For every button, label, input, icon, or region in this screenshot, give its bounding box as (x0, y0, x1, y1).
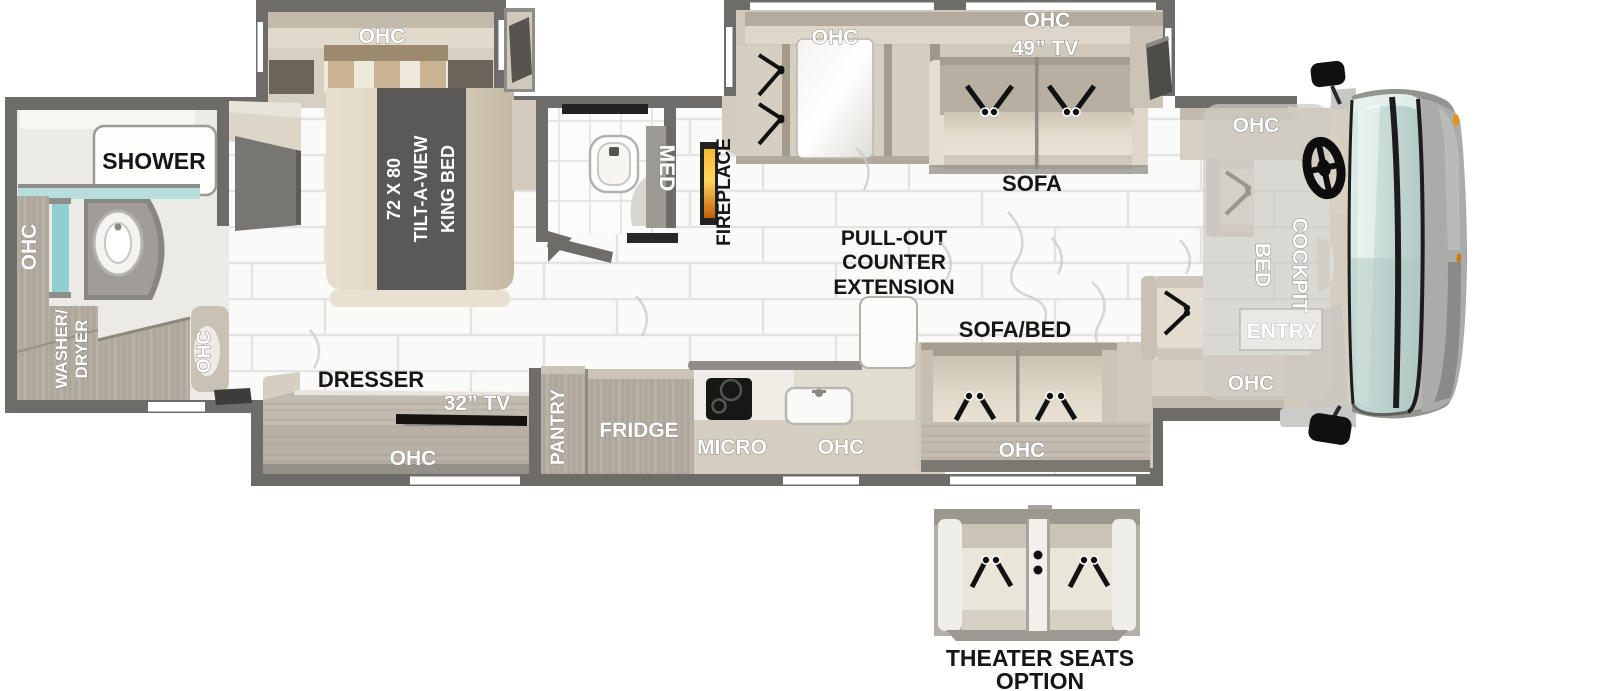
svg-text:OHC: OHC (1228, 372, 1275, 395)
svg-text:COUNTER: COUNTER (842, 251, 946, 274)
svg-text:49” TV: 49” TV (1012, 37, 1079, 60)
svg-text:SHOWER: SHOWER (102, 148, 206, 174)
svg-text:DRESSER: DRESSER (318, 367, 424, 392)
svg-text:FRIDGE: FRIDGE (599, 419, 678, 442)
svg-text:EXTENSION: EXTENSION (833, 276, 954, 299)
svg-text:OHC: OHC (812, 26, 859, 49)
svg-text:SOFA: SOFA (1002, 171, 1062, 196)
svg-text:OHC: OHC (999, 439, 1046, 462)
svg-text:PANTRY: PANTRY (548, 389, 569, 465)
svg-text:OHC: OHC (194, 331, 215, 374)
svg-text:OHC: OHC (1233, 114, 1280, 137)
svg-text:SOFA/BED: SOFA/BED (959, 317, 1071, 342)
svg-text:32” TV: 32” TV (444, 392, 511, 415)
svg-text:MED: MED (655, 145, 678, 192)
svg-text:OHC: OHC (359, 25, 406, 48)
svg-text:OPTION: OPTION (996, 668, 1084, 691)
svg-text:MICRO: MICRO (697, 436, 767, 459)
svg-text:OHC: OHC (818, 436, 865, 459)
svg-text:PULL-OUT: PULL-OUT (841, 227, 947, 250)
svg-text:FIREPLACE: FIREPLACE (714, 138, 735, 246)
svg-text:OHC: OHC (390, 447, 437, 470)
svg-text:WASHER/DRYER: WASHER/DRYER (52, 309, 91, 389)
svg-text:OHC: OHC (1024, 9, 1071, 32)
svg-text:OHC: OHC (18, 224, 41, 271)
